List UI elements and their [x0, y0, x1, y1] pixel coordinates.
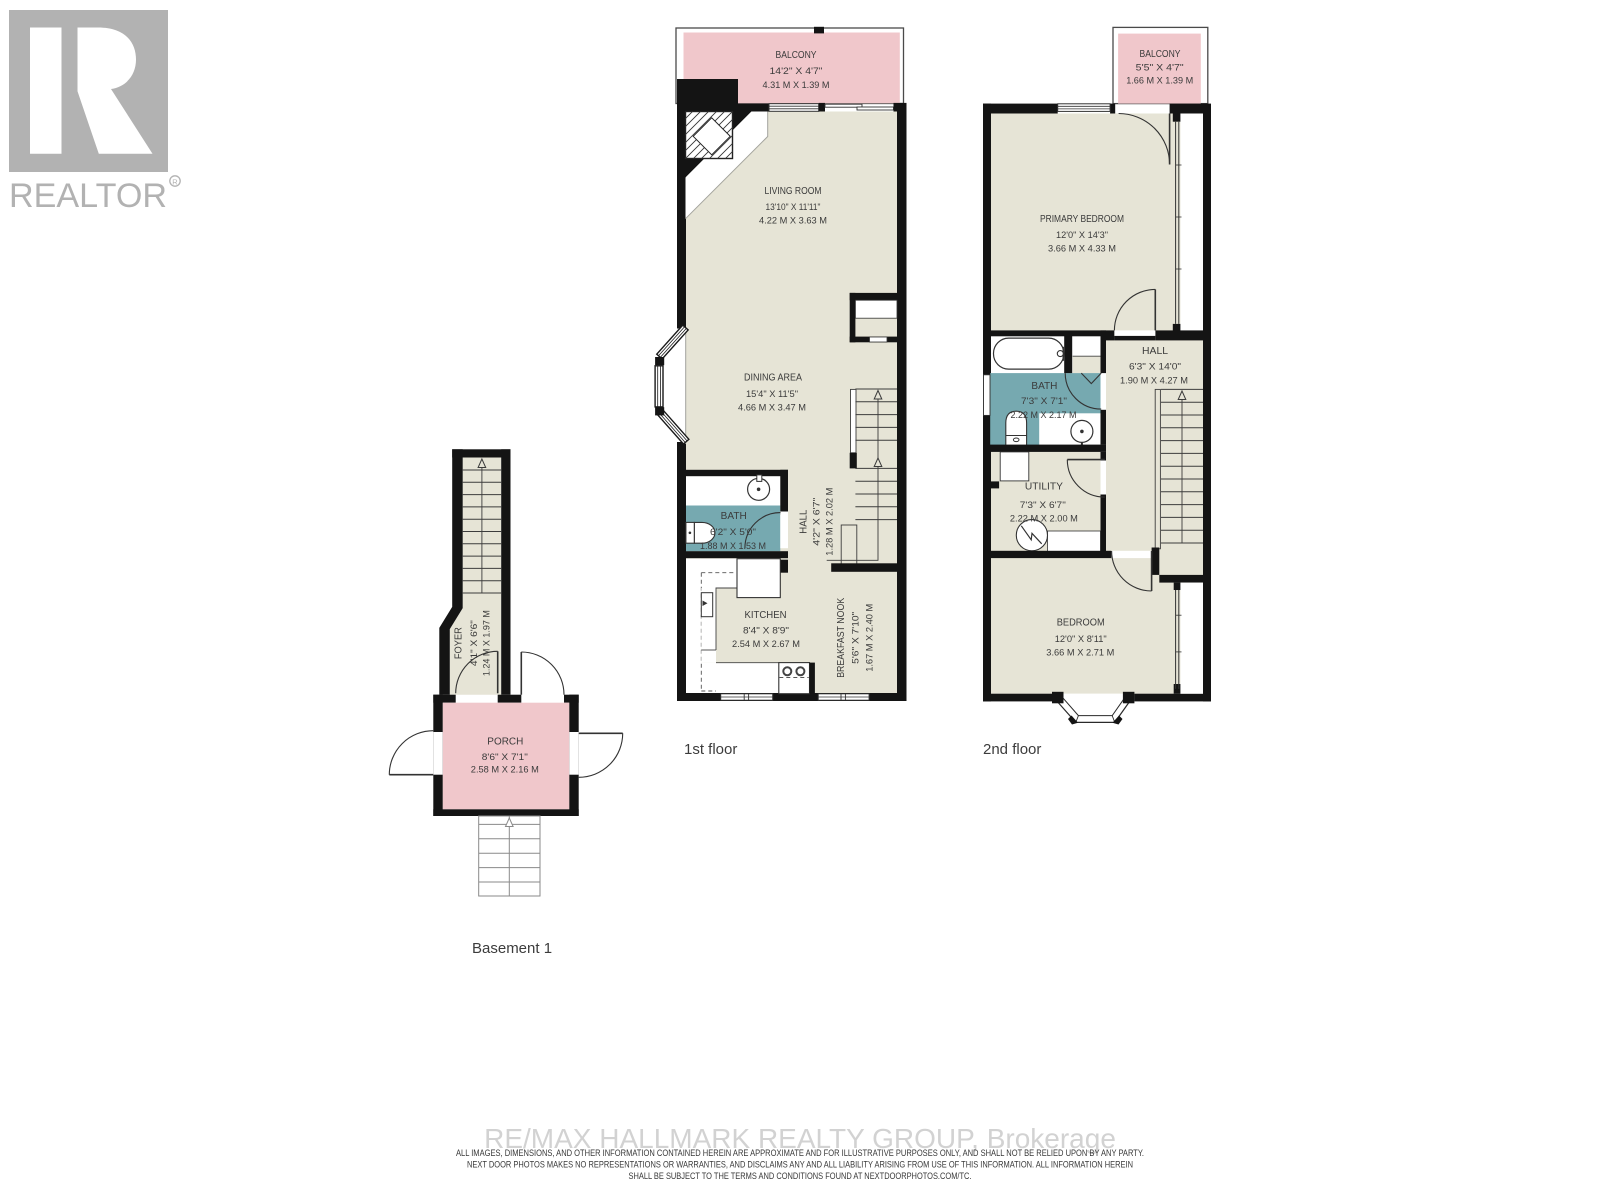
svg-text:4.31 M X 1.39 M: 4.31 M X 1.39 M [763, 80, 830, 91]
svg-text:1.90 M X 4.27 M: 1.90 M X 4.27 M [1120, 376, 1188, 387]
svg-text:PRIMARY BEDROOM: PRIMARY BEDROOM [1040, 214, 1124, 225]
svg-text:BALCONY: BALCONY [1140, 49, 1181, 60]
svg-text:Basement 1: Basement 1 [472, 940, 552, 957]
svg-text:6'2" X 5'0": 6'2" X 5'0" [710, 527, 756, 538]
svg-text:BREAKFAST NOOK: BREAKFAST NOOK [836, 598, 847, 678]
svg-text:7'3" X 7'1": 7'3" X 7'1" [1021, 396, 1067, 407]
svg-text:8'6" X 7'1": 8'6" X 7'1" [482, 752, 528, 763]
svg-text:SHALL BE SUBJECT TO THE TERMS: SHALL BE SUBJECT TO THE TERMS AND CONDIT… [629, 1171, 972, 1181]
svg-text:KITCHEN: KITCHEN [745, 610, 787, 621]
svg-text:4.22 M X 3.63 M: 4.22 M X 3.63 M [759, 216, 827, 227]
svg-text:4'2" X 6'7": 4'2" X 6'7" [812, 498, 823, 546]
svg-text:1.67 M X 2.40 M: 1.67 M X 2.40 M [865, 604, 876, 672]
svg-text:1.88 M X 1.53 M: 1.88 M X 1.53 M [700, 541, 766, 552]
svg-text:5'6" X 7'10": 5'6" X 7'10" [851, 612, 862, 664]
svg-text:HALL: HALL [799, 509, 810, 533]
svg-text:LIVING ROOM: LIVING ROOM [765, 186, 822, 197]
svg-text:R: R [172, 178, 178, 187]
svg-text:8'4" X 8'9": 8'4" X 8'9" [743, 626, 789, 637]
svg-text:1.66 M X 1.39 M: 1.66 M X 1.39 M [1126, 76, 1193, 87]
svg-text:NEXT DOOR PHOTOS MAKES NO REPR: NEXT DOOR PHOTOS MAKES NO REPRESENTATION… [467, 1160, 1133, 1170]
svg-text:7'3" X 6'7": 7'3" X 6'7" [1020, 500, 1066, 511]
svg-text:BALCONY: BALCONY [776, 50, 817, 61]
svg-text:BATH: BATH [721, 511, 747, 522]
svg-text:14'2" X 4'7": 14'2" X 4'7" [770, 66, 823, 77]
svg-text:13'10" X 11'11": 13'10" X 11'11" [766, 202, 821, 213]
svg-text:5'5" X 4'7": 5'5" X 4'7" [1136, 63, 1184, 74]
svg-text:HALL: HALL [1142, 346, 1168, 357]
svg-text:BEDROOM: BEDROOM [1057, 618, 1105, 629]
svg-text:DINING AREA: DINING AREA [744, 373, 802, 384]
svg-text:15'4" X 11'5": 15'4" X 11'5" [746, 389, 798, 400]
svg-text:6'3" X 14'0": 6'3" X 14'0" [1129, 362, 1181, 373]
svg-text:3.66 M X 4.33 M: 3.66 M X 4.33 M [1048, 244, 1116, 255]
svg-text:3.66 M X 2.71 M: 3.66 M X 2.71 M [1046, 648, 1114, 659]
svg-text:1st floor: 1st floor [684, 741, 737, 758]
svg-text:2.22 M X 2.17 M: 2.22 M X 2.17 M [1011, 410, 1077, 421]
svg-text:2.58 M X 2.16 M: 2.58 M X 2.16 M [471, 765, 539, 776]
svg-text:2nd floor: 2nd floor [983, 741, 1041, 758]
svg-text:REALTOR: REALTOR [9, 177, 167, 215]
svg-text:12'0" X 8'11": 12'0" X 8'11" [1055, 634, 1107, 645]
svg-text:BATH: BATH [1031, 381, 1057, 392]
svg-text:UTILITY: UTILITY [1025, 482, 1063, 493]
svg-text:ALL IMAGES, DIMENSIONS, AND OT: ALL IMAGES, DIMENSIONS, AND OTHER INFORM… [456, 1148, 1144, 1158]
svg-text:1.28 M X 2.02 M: 1.28 M X 2.02 M [825, 488, 836, 556]
svg-text:12'0" X 14'3": 12'0" X 14'3" [1056, 230, 1108, 241]
svg-text:2.54 M X 2.67 M: 2.54 M X 2.67 M [732, 639, 800, 650]
svg-text:FOYER: FOYER [454, 627, 465, 659]
svg-text:4'1" X 6'6": 4'1" X 6'6" [469, 620, 480, 666]
svg-text:2.22 M X 2.00 M: 2.22 M X 2.00 M [1010, 514, 1078, 525]
svg-text:PORCH: PORCH [487, 737, 523, 748]
svg-text:1.24 M X 1.97 M: 1.24 M X 1.97 M [482, 610, 493, 676]
svg-text:4.66 M X 3.47 M: 4.66 M X 3.47 M [738, 403, 806, 414]
